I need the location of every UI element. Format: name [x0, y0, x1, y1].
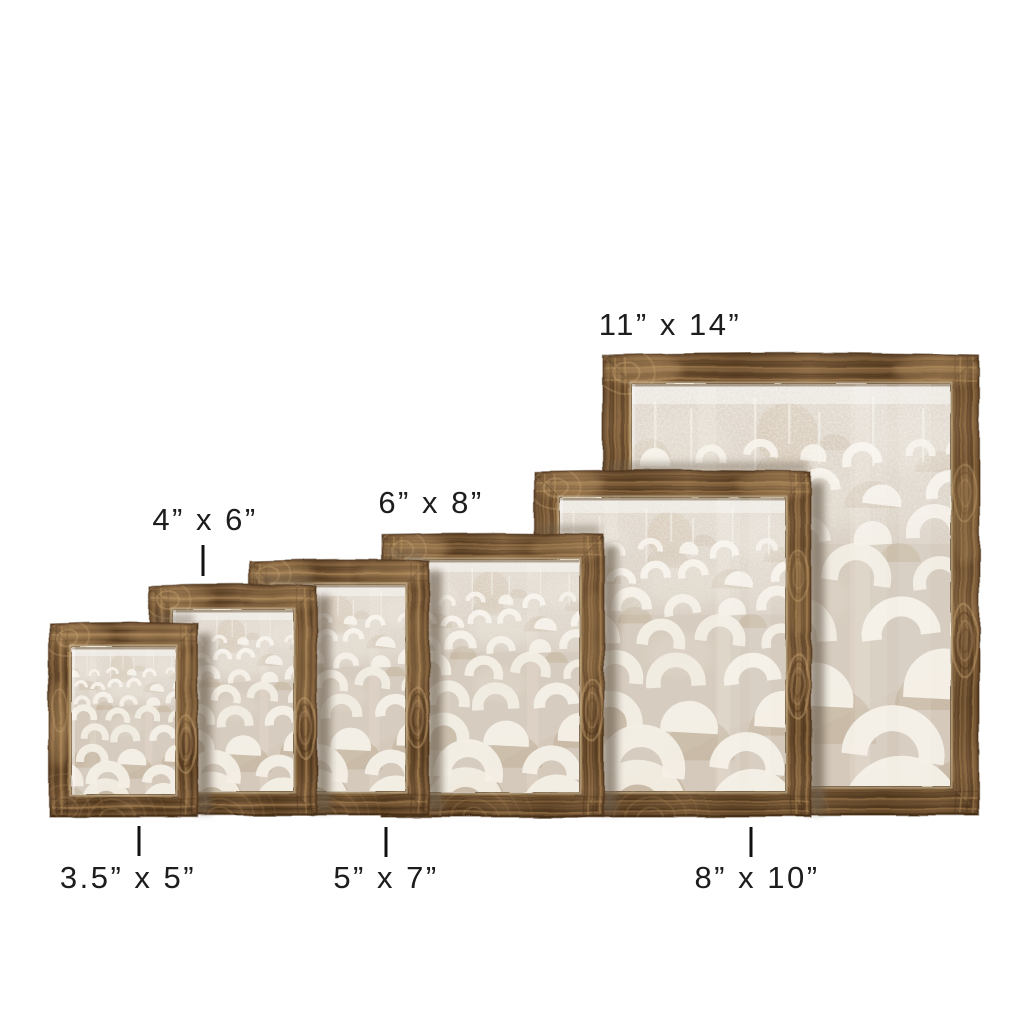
svg-text:5” x 7”: 5” x 7” — [333, 860, 438, 895]
svg-text:8” x 10”: 8” x 10” — [694, 860, 819, 895]
svg-text:4” x 6”: 4” x 6” — [152, 502, 257, 537]
svg-text:3.5” x 5”: 3.5” x 5” — [60, 860, 196, 895]
svg-text:6” x 8”: 6” x 8” — [378, 485, 483, 520]
svg-text:11” x 14”: 11” x 14” — [599, 307, 742, 342]
